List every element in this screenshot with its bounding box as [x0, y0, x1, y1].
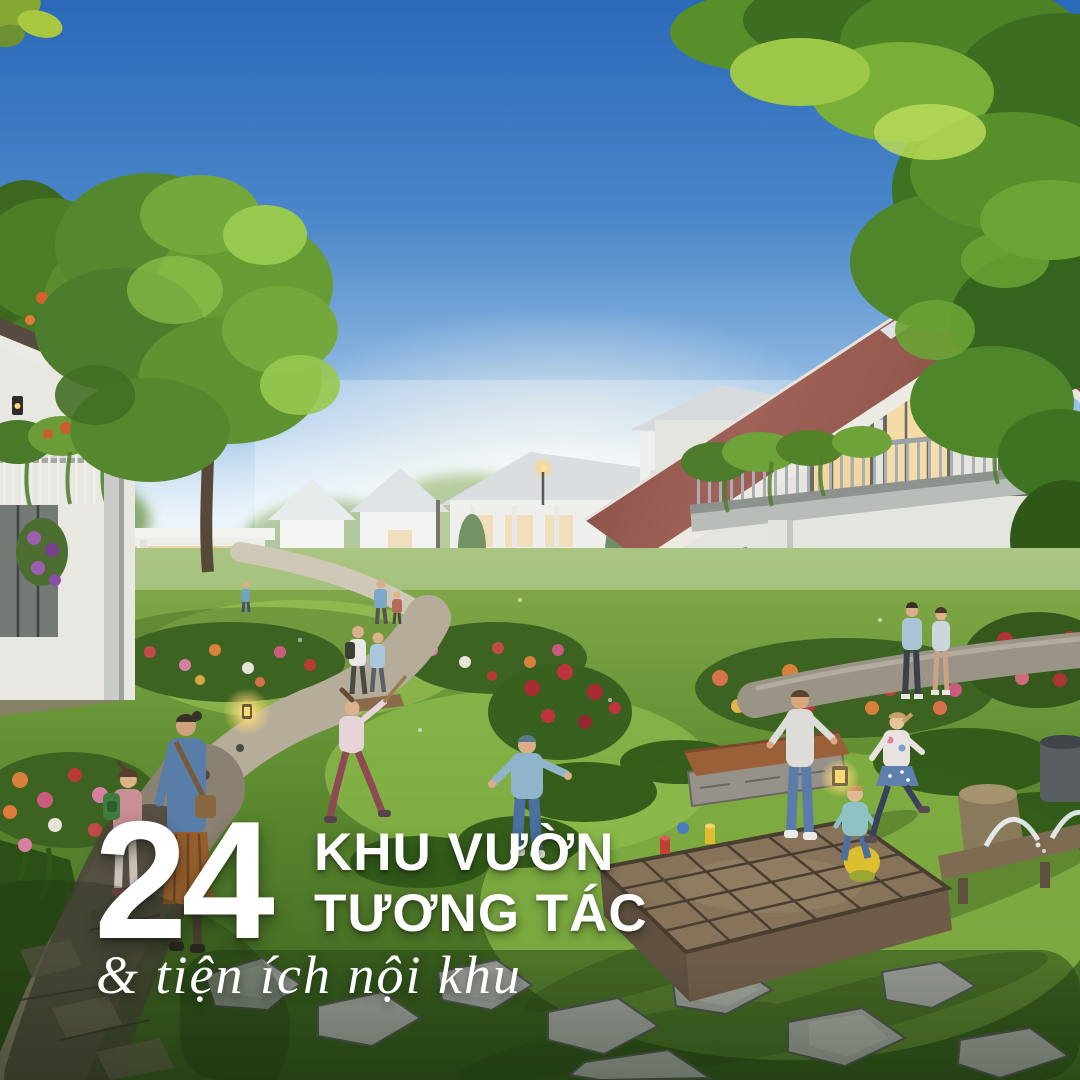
scene-render	[0, 0, 1080, 1080]
planter-barrel	[1040, 740, 1080, 802]
bougainvillea	[16, 518, 68, 586]
rose-bush-center	[488, 664, 632, 760]
marketing-poster: 24 KHU VƯỜN TƯƠNG TÁC & tiện ích nội khu	[0, 0, 1080, 1080]
